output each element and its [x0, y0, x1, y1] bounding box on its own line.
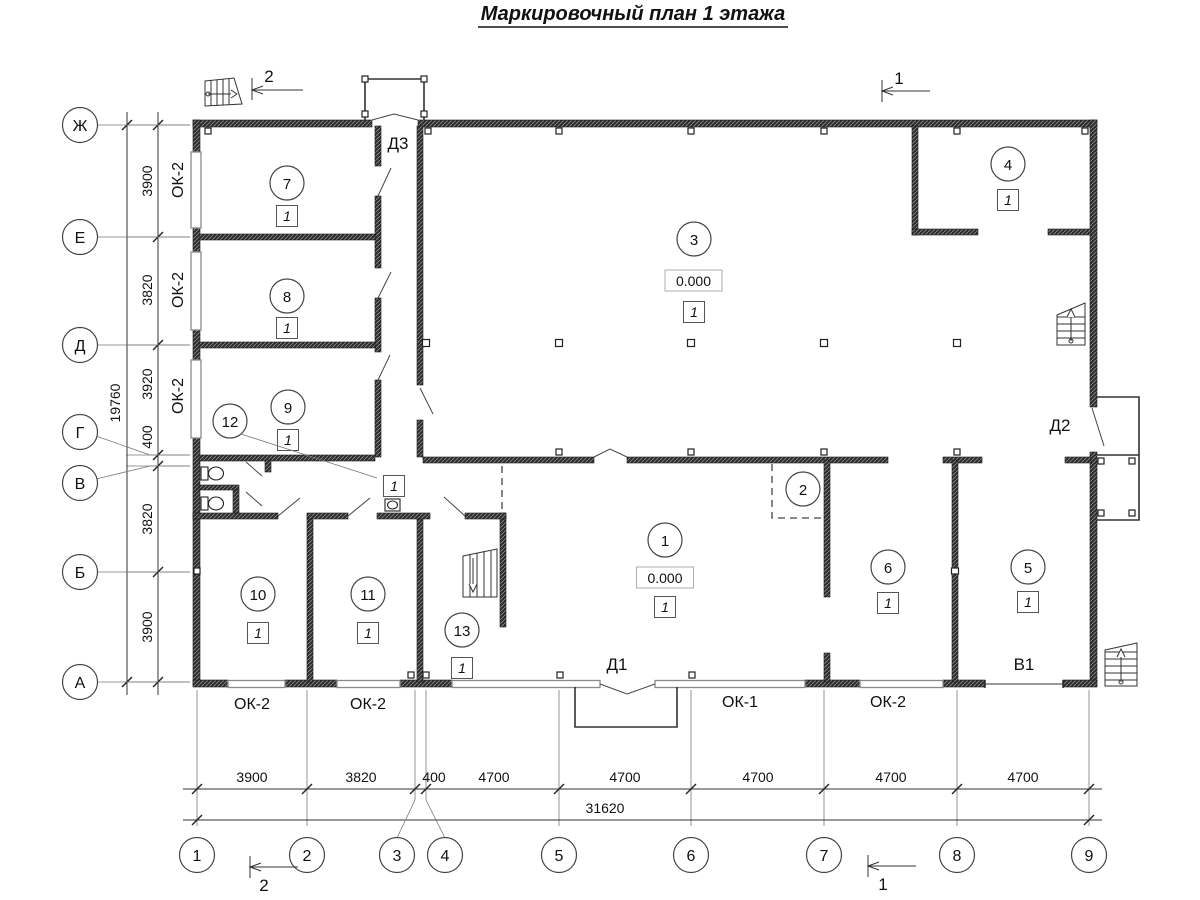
door-d3-leaves [372, 114, 418, 120]
room9-number: 9 [284, 400, 292, 417]
axis-col-3-label: 3 [393, 848, 402, 865]
axis-row-g-label: Г [76, 425, 85, 442]
room1-number: 1 [661, 533, 669, 550]
room12-number: 12 [222, 414, 239, 431]
room11-number: 11 [360, 587, 376, 604]
axis-col-6-label: 6 [687, 848, 696, 865]
stair-interior-right [1057, 303, 1085, 345]
toilet-icon [201, 497, 224, 510]
dim-h-3: 400 [422, 769, 446, 785]
room3-tag: 1 [690, 304, 698, 320]
room7-tag: 1 [283, 208, 291, 224]
windows-glazing [191, 152, 943, 688]
label-door-d1: Д1 [607, 655, 628, 674]
grid-axes-cols: 1 2 3 4 5 6 7 8 9 [180, 800, 1107, 873]
section-2-bottom-label: 2 [259, 876, 268, 895]
room8-tag: 1 [283, 320, 291, 336]
axis-row-b-label: Б [75, 565, 86, 582]
axis-row-zh-label: Ж [73, 118, 88, 135]
stair-exterior-top-left [205, 78, 242, 106]
room7-number: 7 [283, 176, 291, 193]
room1-tag: 1 [661, 599, 669, 615]
label-ok2-left-3: ОК-2 [170, 378, 187, 414]
floor-plan-canvas: Маркировочный план 1 этажа [0, 0, 1200, 900]
dim-v-4: 400 [139, 425, 155, 449]
room4-number: 4 [1004, 157, 1012, 174]
axis-row-d-label: Д [75, 338, 86, 355]
dim-h-1: 3900 [236, 769, 267, 785]
stair-exterior-bottom-right [1105, 643, 1137, 686]
room11-tag: 1 [364, 625, 372, 641]
label-door-v1: В1 [1014, 655, 1035, 674]
axis-col-2-label: 2 [303, 848, 312, 865]
floor-plan-drawing: Маркировочный план 1 этажа [0, 0, 1200, 900]
section-1-top-label: 1 [894, 69, 903, 88]
label-door-d3: Д3 [388, 134, 409, 153]
room4-tag: 1 [1004, 192, 1012, 208]
axis-col-9-label: 9 [1085, 848, 1094, 865]
dim-v-1: 3900 [139, 165, 155, 196]
dim-v-total: 19760 [107, 383, 123, 422]
axis-col-8-label: 8 [953, 848, 962, 865]
axis-row-e-label: Е [75, 230, 86, 247]
drawing-title: Маркировочный план 1 этажа [478, 3, 788, 27]
room10-tag: 1 [254, 625, 262, 641]
room8-number: 8 [283, 289, 291, 306]
label-ok2-left-1: ОК-2 [170, 162, 187, 198]
label-ok1-bottom: ОК-1 [722, 694, 758, 711]
section-mark-1-bottom: 1 [868, 855, 916, 894]
toilet-icon [201, 467, 224, 480]
dim-h-7: 4700 [875, 769, 906, 785]
room9-tag: 1 [284, 432, 292, 448]
dim-h-6: 4700 [742, 769, 773, 785]
label-door-d2: Д2 [1050, 416, 1071, 435]
page-title: Маркировочный план 1 этажа [481, 3, 786, 25]
room5-tag: 1 [1024, 594, 1032, 610]
section-mark-2-top: 2 [252, 67, 303, 100]
window-ok2-room10 [228, 681, 285, 688]
room6-tag: 1 [884, 595, 892, 611]
room1-elevation: 0.000 [647, 570, 682, 586]
axis-row-a-label: А [75, 675, 86, 692]
stair-room13 [463, 549, 497, 597]
room-labels: 7 1 8 1 9 1 12 1 3 0.000 1 4 1 1 0.000 [213, 147, 1045, 679]
dim-h-4: 4700 [478, 769, 509, 785]
label-ok2-bottom-3: ОК-2 [870, 694, 906, 711]
axis-row-v-label: В [75, 476, 86, 493]
window-ok2-room7 [191, 152, 201, 228]
section-mark-1-top: 1 [882, 69, 930, 102]
dim-v-6: 3900 [139, 611, 155, 642]
axis-col-1-label: 1 [193, 848, 202, 865]
room12-tag: 1 [390, 478, 398, 494]
dim-h-2: 3820 [345, 769, 376, 785]
window-ok2-room11 [337, 681, 400, 688]
label-ok2-bottom-1: ОК-2 [234, 696, 270, 713]
walls [193, 120, 1097, 687]
room3-number: 3 [690, 232, 698, 249]
room6-number: 6 [884, 560, 892, 577]
room10-number: 10 [250, 587, 267, 604]
axis-col-4-label: 4 [441, 848, 450, 865]
window-ok2-room8 [191, 252, 201, 330]
room5-number: 5 [1024, 560, 1032, 577]
axis-col-5-label: 5 [555, 848, 564, 865]
opening-labels: ОК-2 ОК-2 ОК-2 ОК-2 ОК-2 ОК-1 ОК-2 Д3 Д1… [170, 134, 1070, 713]
window-ok2-room9 [191, 360, 201, 438]
axis-col-7-label: 7 [820, 848, 829, 865]
dim-v-2: 3820 [139, 274, 155, 305]
window-ok1 [655, 681, 805, 688]
section-1-bottom-label: 1 [878, 875, 887, 894]
window-ok2-room6 [860, 681, 943, 688]
section-2-top-label: 2 [264, 67, 273, 86]
room2-number: 2 [799, 482, 807, 499]
dim-h-5: 4700 [609, 769, 640, 785]
dim-v-5: 3820 [139, 503, 155, 534]
porch-d1 [575, 687, 677, 727]
room13-tag: 1 [458, 660, 466, 676]
dim-h-8: 4700 [1007, 769, 1038, 785]
room3-elevation: 0.000 [676, 273, 711, 289]
label-ok2-left-2: ОК-2 [170, 272, 187, 308]
window-bottom-left-of-door [452, 681, 600, 688]
dim-h-total: 31620 [586, 800, 625, 816]
room13-number: 13 [454, 623, 471, 640]
dim-v-3: 3920 [139, 368, 155, 399]
sink-icon [385, 499, 400, 511]
label-ok2-bottom-2: ОК-2 [350, 696, 386, 713]
